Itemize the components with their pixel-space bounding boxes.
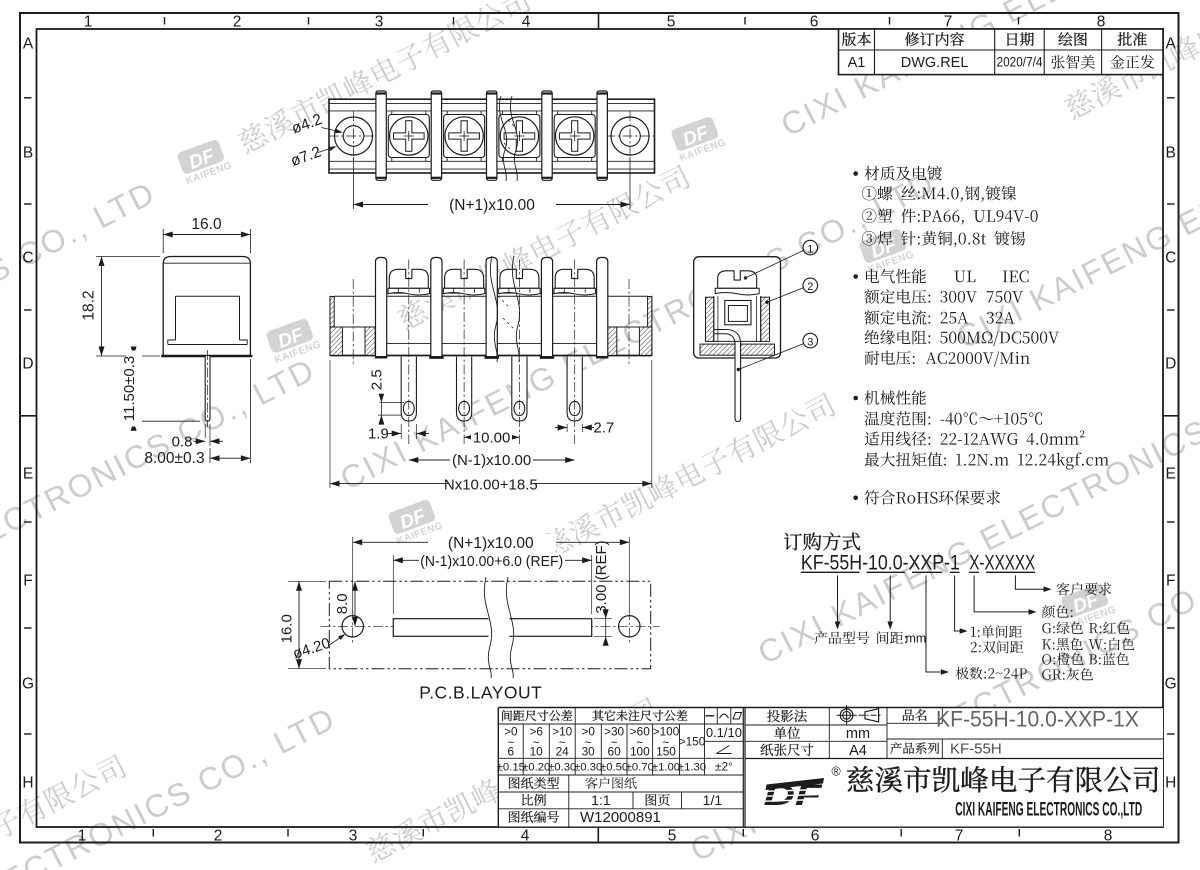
svg-text:7: 7 xyxy=(955,828,964,845)
svg-text:5: 5 xyxy=(668,828,677,845)
svg-text:1.9: 1.9 xyxy=(368,426,389,443)
svg-text:>150: >150 xyxy=(679,735,706,749)
svg-text:10.00: 10.00 xyxy=(473,429,511,446)
svg-text:F: F xyxy=(1166,573,1175,590)
svg-text:±0.50: ±0.50 xyxy=(600,762,628,774)
svg-text:Nx10.00+18.5: Nx10.00+18.5 xyxy=(444,476,538,493)
svg-text:E: E xyxy=(23,466,33,483)
svg-text:3: 3 xyxy=(375,14,384,31)
svg-text:±0.15: ±0.15 xyxy=(497,762,525,774)
svg-text:150: 150 xyxy=(656,745,676,759)
svg-text:C: C xyxy=(1165,250,1176,267)
svg-text:G: G xyxy=(22,676,34,693)
svg-text:mm: mm xyxy=(906,632,927,646)
svg-text:2: 2 xyxy=(214,828,223,845)
svg-text:3: 3 xyxy=(349,828,358,845)
svg-text:B: B xyxy=(23,145,33,162)
svg-text:10: 10 xyxy=(530,745,544,759)
svg-text:F: F xyxy=(23,573,32,590)
svg-text:1: 1 xyxy=(84,14,93,31)
svg-text:KF-55H-10.0-XXP-1X: KF-55H-10.0-XXP-1X xyxy=(936,707,1139,732)
svg-text:X-XXXXX: X-XXXXX xyxy=(969,552,1035,575)
svg-text:11.50±0.3: 11.50±0.3 xyxy=(121,356,138,422)
svg-text:3.00 (REF): 3.00 (REF) xyxy=(593,540,610,613)
svg-text:0.8: 0.8 xyxy=(172,433,193,450)
svg-text:30: 30 xyxy=(582,745,596,759)
svg-text:16.0: 16.0 xyxy=(279,614,296,643)
svg-text:mm: mm xyxy=(846,726,870,742)
svg-text:D: D xyxy=(22,356,33,373)
svg-text:A4: A4 xyxy=(849,743,867,759)
svg-text:1: 1 xyxy=(807,243,813,255)
svg-text:±0.30: ±0.30 xyxy=(574,762,602,774)
svg-text:±0.20: ±0.20 xyxy=(522,762,550,774)
svg-text:C: C xyxy=(22,250,33,267)
svg-text:16.0: 16.0 xyxy=(191,216,222,233)
svg-text:4: 4 xyxy=(522,14,531,31)
svg-text:CIXI KAIFENG ELECTRONICS CO.,L: CIXI KAIFENG ELECTRONICS CO.,LTD xyxy=(955,799,1142,820)
svg-text:W12000891: W12000891 xyxy=(580,809,661,826)
svg-text:(N-1)x10.00: (N-1)x10.00 xyxy=(452,452,531,469)
svg-text:®: ® xyxy=(832,765,842,779)
svg-text:±1.00: ±1.00 xyxy=(652,762,680,774)
svg-text:A: A xyxy=(1166,36,1177,53)
svg-text:KF-55H: KF-55H xyxy=(950,741,1002,758)
svg-text:H: H xyxy=(22,775,33,792)
svg-text:2.5: 2.5 xyxy=(369,369,386,390)
svg-text:6: 6 xyxy=(508,745,515,759)
svg-text:P.C.B.LAYOUT: P.C.B.LAYOUT xyxy=(419,683,542,703)
svg-text:2.7: 2.7 xyxy=(593,420,614,437)
svg-text:8: 8 xyxy=(1104,828,1113,845)
svg-text:±0.30: ±0.30 xyxy=(548,762,576,774)
svg-text:(N-1)x10.00+6.0 (REF): (N-1)x10.00+6.0 (REF) xyxy=(420,554,563,570)
svg-text:2: 2 xyxy=(233,14,242,31)
svg-text:D: D xyxy=(1165,356,1176,373)
svg-text:4: 4 xyxy=(521,828,530,845)
svg-text:6: 6 xyxy=(810,14,819,31)
svg-text:8.0: 8.0 xyxy=(334,593,351,614)
svg-text:(N+1)x10.00: (N+1)x10.00 xyxy=(449,197,535,214)
svg-text:8: 8 xyxy=(1097,14,1106,31)
svg-text:24: 24 xyxy=(556,745,570,759)
svg-text:KF-55H-10.0-XXP-1: KF-55H-10.0-XXP-1 xyxy=(801,552,960,575)
svg-text:G: G xyxy=(1165,676,1177,693)
svg-text:5: 5 xyxy=(667,14,676,31)
svg-text:B: B xyxy=(1166,145,1176,162)
svg-text:3: 3 xyxy=(807,336,813,348)
svg-text:0.1/10: 0.1/10 xyxy=(706,725,742,740)
svg-text:2: 2 xyxy=(807,281,813,293)
svg-text:±2°: ±2° xyxy=(715,760,733,774)
svg-text:A1: A1 xyxy=(848,55,866,71)
svg-text:8.00±0.3: 8.00±0.3 xyxy=(144,450,204,467)
svg-text:1:1: 1:1 xyxy=(591,792,611,808)
svg-text:(N+1)x10.00: (N+1)x10.00 xyxy=(448,535,534,552)
svg-text:±1.30: ±1.30 xyxy=(678,762,706,774)
svg-text:E: E xyxy=(1166,466,1176,483)
svg-text:DWG.REL: DWG.REL xyxy=(901,55,969,71)
svg-text:1/1: 1/1 xyxy=(703,792,723,808)
svg-text:2020/7/4: 2020/7/4 xyxy=(997,54,1043,70)
svg-text:7: 7 xyxy=(944,14,953,31)
svg-text:6: 6 xyxy=(811,828,820,845)
svg-text:A: A xyxy=(23,36,34,53)
svg-text:1: 1 xyxy=(78,828,87,845)
svg-text:±0.70: ±0.70 xyxy=(626,762,654,774)
svg-text:H: H xyxy=(1165,775,1176,792)
svg-text:100: 100 xyxy=(630,745,650,759)
svg-text:60: 60 xyxy=(608,745,622,759)
svg-text:18.2: 18.2 xyxy=(81,290,98,320)
